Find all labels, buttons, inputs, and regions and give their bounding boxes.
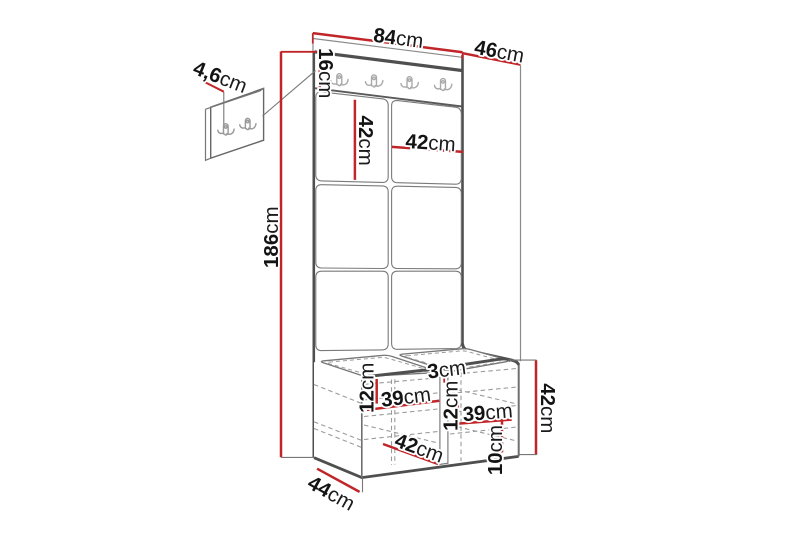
svg-text:12cm: 12cm bbox=[439, 381, 462, 431]
svg-text:39cm: 39cm bbox=[462, 399, 514, 426]
svg-text:42cm: 42cm bbox=[536, 383, 559, 433]
svg-text:10cm: 10cm bbox=[484, 425, 507, 475]
svg-text:3cm: 3cm bbox=[426, 356, 467, 384]
svg-text:42cm: 42cm bbox=[354, 116, 377, 166]
svg-text:12cm: 12cm bbox=[355, 363, 378, 413]
svg-text:16cm: 16cm bbox=[314, 48, 337, 98]
svg-text:42cm: 42cm bbox=[405, 130, 457, 156]
svg-text:186cm: 186cm bbox=[260, 206, 283, 268]
